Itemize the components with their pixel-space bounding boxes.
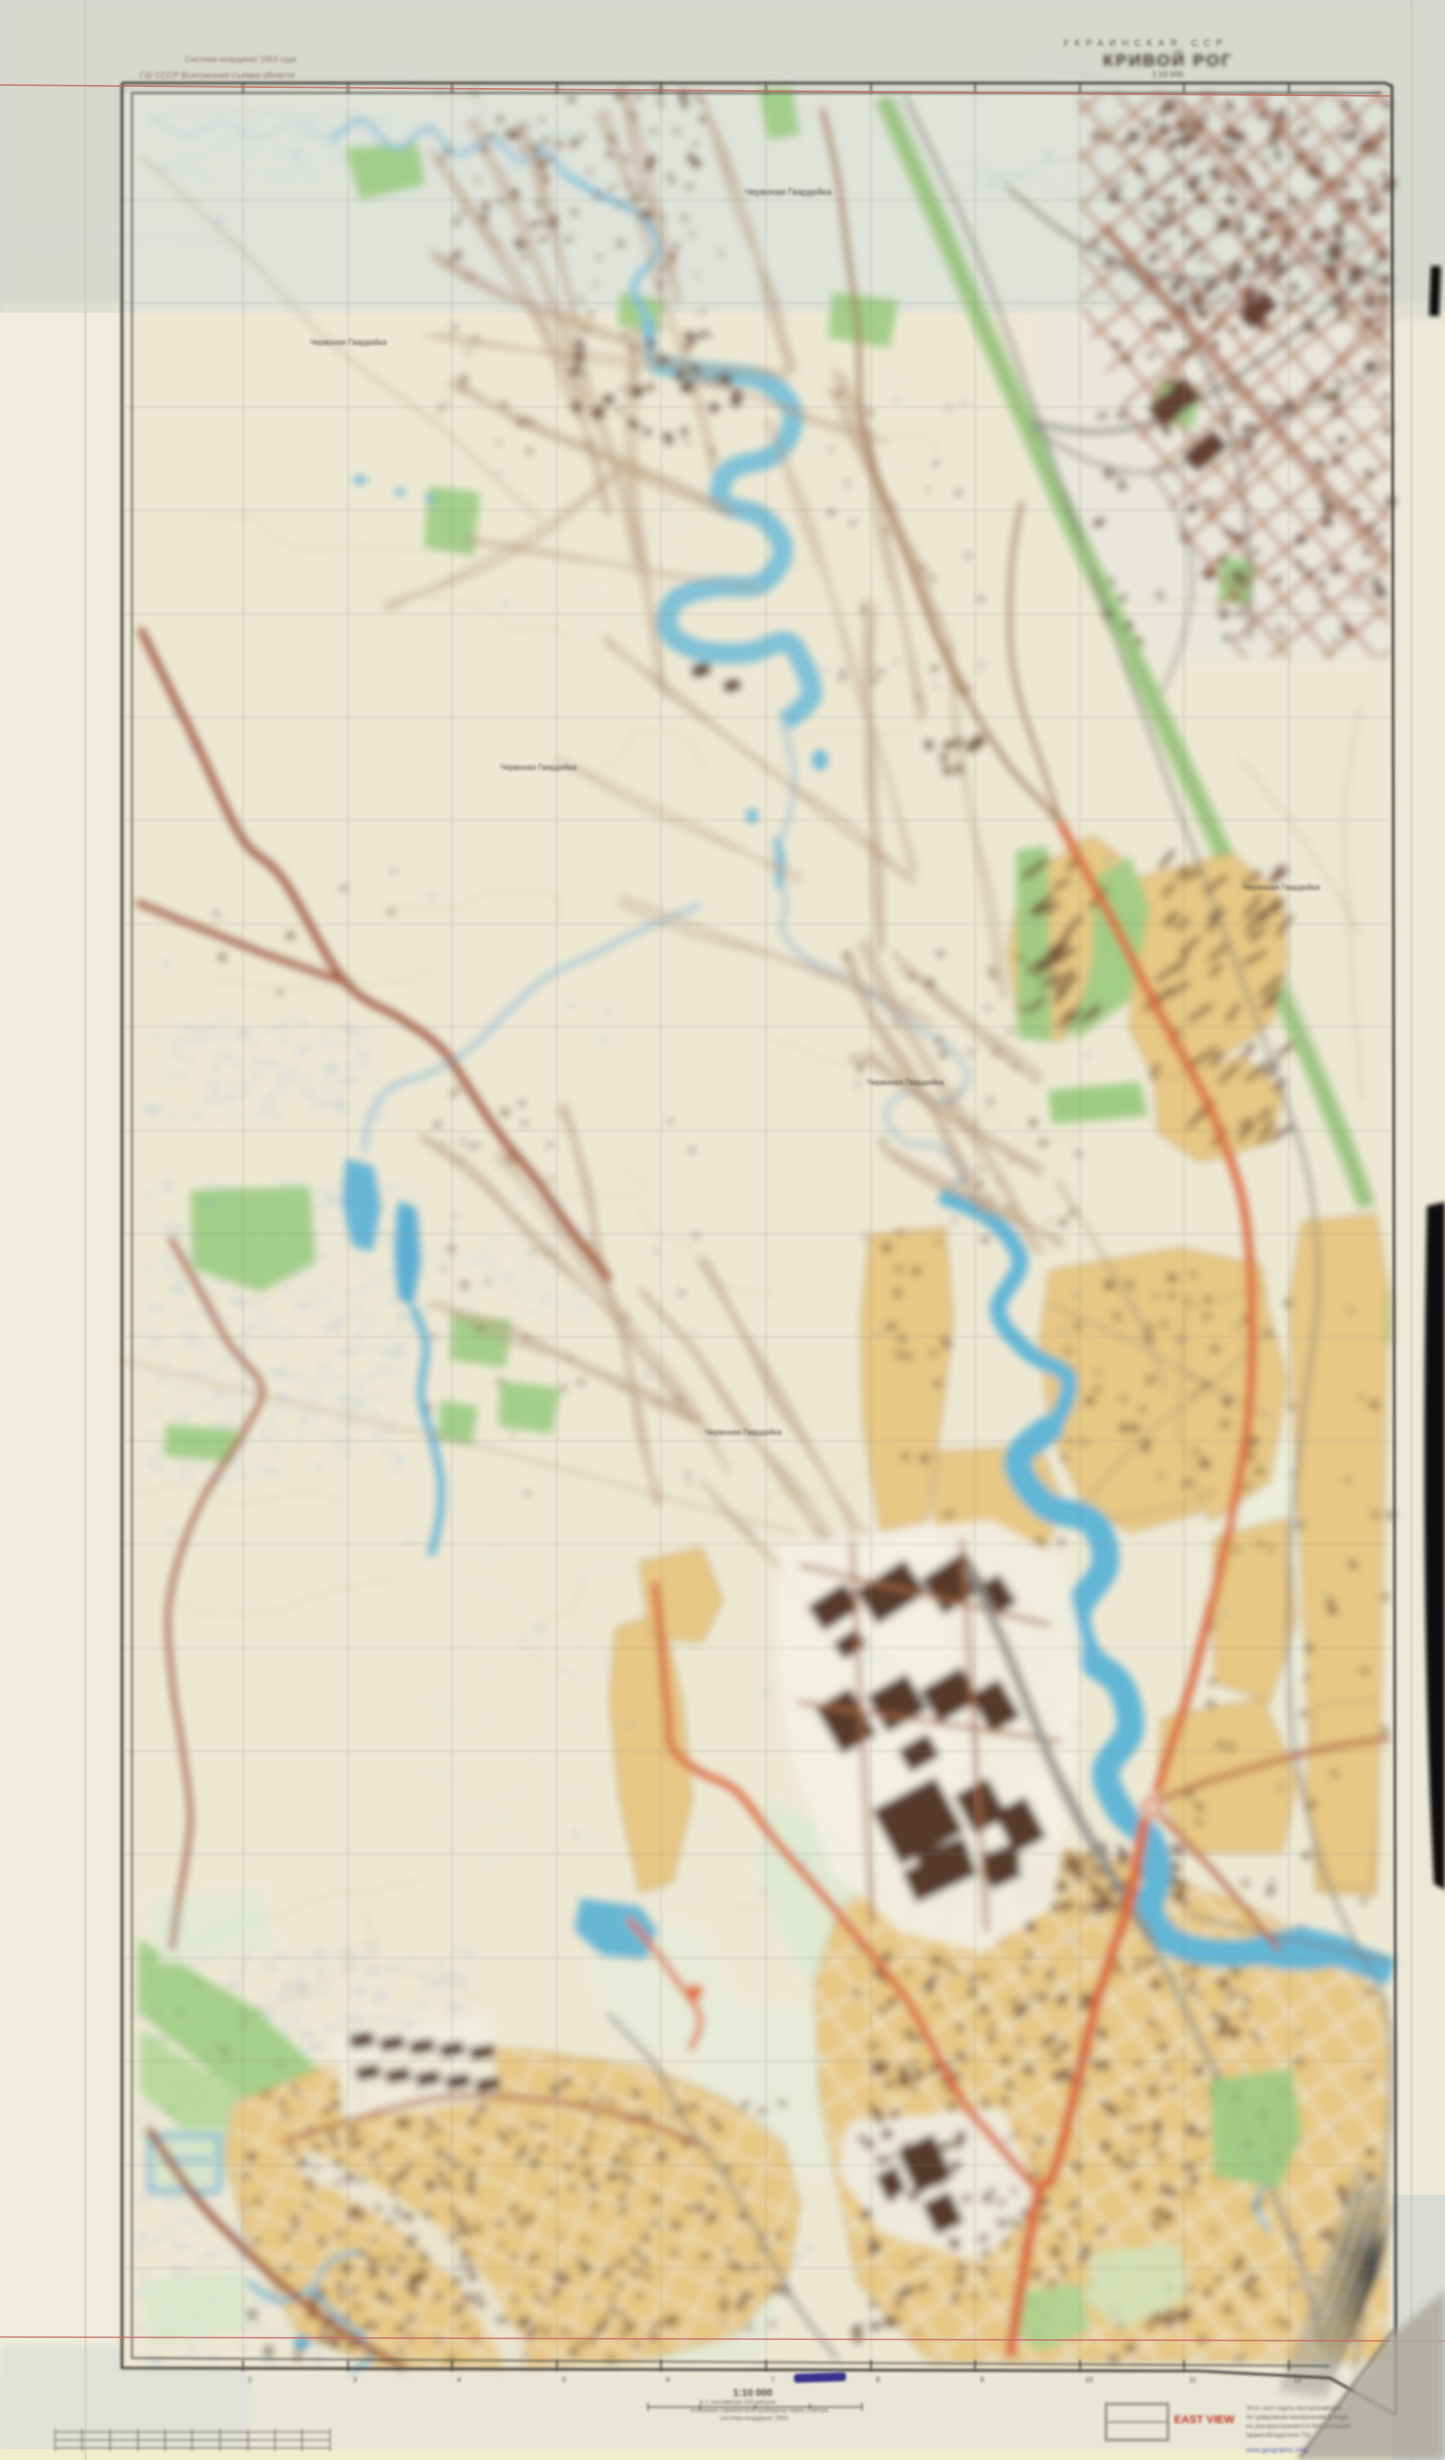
svg-text:правообладателя ГШ: правообладателя ГШ: [1246, 2431, 1310, 2439]
svg-text:по цифровым материалам в виде: по цифровым материалам в виде: [1246, 2414, 1348, 2421]
svg-text:www.geographic.map: www.geographic.map: [1245, 2447, 1309, 2454]
svg-text:сплошные горизонтали проведены: сплошные горизонтали проведены через 2 м…: [690, 2408, 829, 2414]
svg-text:11: 11: [1189, 2377, 1196, 2384]
svg-text:3: 3: [353, 2377, 357, 2384]
svg-text:Червоная Гвардейка: Червоная Гвардейка: [310, 338, 387, 347]
svg-text:Червоная Гвардейка: Червоная Гвардейка: [867, 1078, 944, 1087]
svg-text:КРИВОЙ РОГ: КРИВОЙ РОГ: [1103, 51, 1233, 70]
svg-text:Система координат 1963 года: Система координат 1963 года: [185, 55, 297, 64]
svg-text:EAST VIEW: EAST VIEW: [1174, 2414, 1235, 2426]
svg-text:Червоная Гвардейка: Червоная Гвардейка: [745, 187, 831, 197]
svg-text:система координат 1963: система координат 1963: [720, 2416, 789, 2422]
svg-text:Червоная Гвардейка: Червоная Гвардейка: [1243, 883, 1320, 892]
svg-text:5: 5: [562, 2377, 566, 2384]
svg-text:1:10 000: 1:10 000: [733, 2388, 773, 2399]
svg-text:12: 12: [1294, 2377, 1302, 2384]
svg-text:4: 4: [457, 2377, 461, 2384]
svg-text:Этот лист карты воспроизведён: Этот лист карты воспроизведён: [1246, 2405, 1343, 2412]
svg-text:Червоная Гвардейка: Червоная Гвардейка: [705, 1428, 782, 1437]
svg-text:10: 10: [1085, 2377, 1093, 2384]
svg-text:9: 9: [980, 2377, 984, 2384]
svg-text:1:10 000: 1:10 000: [1152, 70, 1184, 79]
svg-text:2: 2: [248, 2377, 252, 2384]
svg-text:8: 8: [876, 2377, 880, 2384]
svg-text:7: 7: [771, 2377, 775, 2384]
svg-text:6: 6: [666, 2377, 670, 2384]
svg-text:не распространяется без соглас: не распространяется без согласия: [1246, 2422, 1351, 2430]
svg-text:Червоная Гвардейка: Червоная Гвардейка: [500, 763, 577, 772]
svg-text:УКРАИНСКАЯ ССР: УКРАИНСКАЯ ССР: [1063, 38, 1228, 48]
svg-text:в 1 сантиметре 100 метров: в 1 сантиметре 100 метров: [700, 2400, 776, 2406]
svg-text:ГШ СССР Всесоюзная съёмка обла: ГШ СССР Всесоюзная съёмка области: [140, 70, 295, 80]
